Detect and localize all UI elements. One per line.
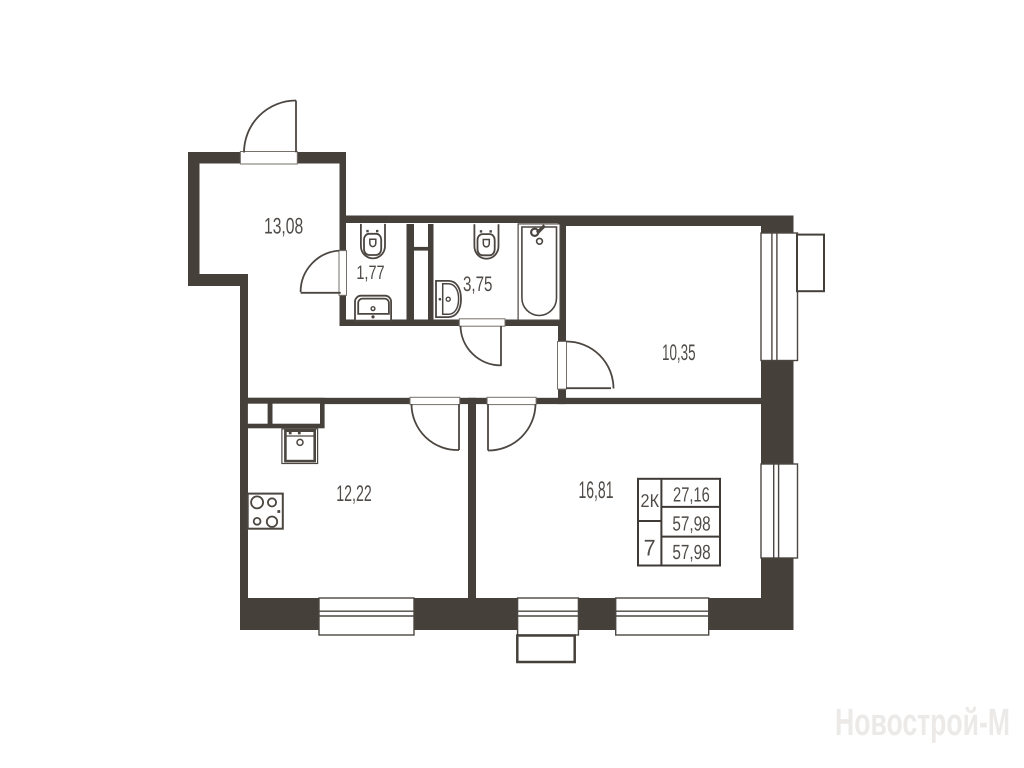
svg-text:57,98: 57,98 (672, 512, 710, 535)
svg-text:7: 7 (644, 534, 656, 560)
svg-text:12,22: 12,22 (336, 481, 372, 506)
svg-text:27,16: 27,16 (673, 483, 710, 506)
svg-text:10,35: 10,35 (662, 340, 696, 365)
svg-text:1,77: 1,77 (356, 262, 384, 284)
svg-text:3,75: 3,75 (463, 273, 492, 296)
svg-text:2К: 2К (641, 490, 660, 511)
svg-text:16,81: 16,81 (579, 477, 614, 504)
svg-text:13,08: 13,08 (264, 214, 303, 239)
svg-text:57,98: 57,98 (672, 541, 710, 564)
svg-text:Новострой-М: Новострой-М (835, 702, 1010, 744)
